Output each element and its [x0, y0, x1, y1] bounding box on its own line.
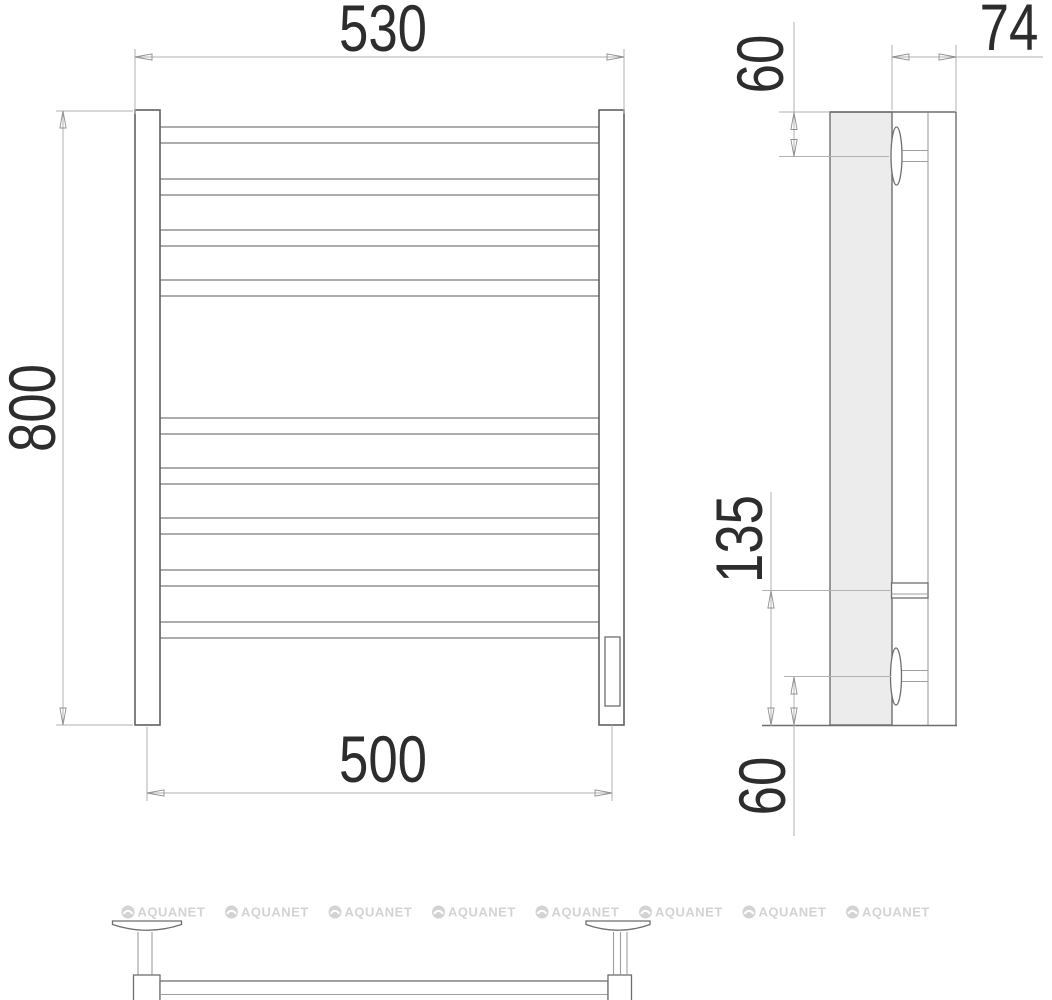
dim-label-135: 135: [702, 495, 776, 583]
watermark: AQUANET: [743, 905, 827, 920]
dim-label-800: 800: [0, 364, 69, 452]
watermark-row: AQUANET AQUANET AQUANET AQUANET AQUANET …: [122, 905, 930, 920]
technical-drawing: AQUANET AQUANET AQUANET AQUANET AQUANET …: [0, 0, 1052, 1000]
aquanet-logo-icon: [432, 906, 445, 919]
watermark-text: AQUANET: [345, 905, 413, 920]
front-view: 530 800 500: [0, 0, 624, 801]
top-bracket: [891, 127, 928, 185]
dim-front-width-bottom: 500: [147, 722, 612, 801]
side-tube: [830, 112, 892, 725]
watermark-text: AQUANET: [759, 905, 827, 920]
aquanet-logo-icon: [536, 906, 549, 919]
dim-label-74: 74: [980, 0, 1039, 64]
bottom-view: [113, 921, 651, 1000]
watermark: AQUANET: [122, 905, 206, 920]
watermark: AQUANET: [846, 905, 930, 920]
dim-label-500: 500: [339, 722, 427, 796]
side-view: 74 60 135: [702, 0, 1043, 836]
aquanet-logo-icon: [639, 906, 652, 919]
right-corner-block: [608, 975, 632, 1000]
watermark: AQUANET: [432, 905, 516, 920]
middle-bracket: [892, 583, 929, 598]
aquanet-logo-icon: [329, 906, 342, 919]
watermark-text: AQUANET: [138, 905, 206, 920]
aquanet-logo-icon: [743, 906, 756, 919]
watermark: AQUANET: [536, 905, 620, 920]
watermark-text: AQUANET: [655, 905, 723, 920]
bottom-bracket: [891, 648, 928, 705]
right-flange: [586, 921, 650, 930]
dim-label-60-bottom: 60: [725, 757, 799, 816]
watermark-text: AQUANET: [552, 905, 620, 920]
dim-front-width-top: 530: [135, 0, 624, 114]
aquanet-logo-icon: [122, 906, 135, 919]
left-corner-block: [134, 975, 161, 1000]
dim-label-530: 530: [339, 0, 427, 65]
watermark: AQUANET: [639, 905, 723, 920]
right-post: [599, 110, 624, 725]
left-post: [135, 110, 160, 725]
watermark-text: AQUANET: [448, 905, 516, 920]
dim-front-height: 800: [0, 111, 133, 725]
watermark: AQUANET: [329, 905, 413, 920]
left-flange: [113, 921, 182, 930]
bottom-tube: [160, 981, 608, 1000]
dim-side-depth: 74: [892, 0, 1043, 112]
towel-rail-drawing: AQUANET AQUANET AQUANET AQUANET AQUANET …: [0, 0, 1052, 1000]
watermark-text: AQUANET: [862, 905, 930, 920]
aquanet-logo-icon: [846, 906, 859, 919]
watermark: AQUANET: [225, 905, 309, 920]
aquanet-logo-icon: [225, 906, 238, 919]
rungs: [160, 127, 599, 638]
dim-label-60-top: 60: [723, 35, 797, 94]
watermark-text: AQUANET: [241, 905, 309, 920]
heating-element: [605, 637, 620, 706]
